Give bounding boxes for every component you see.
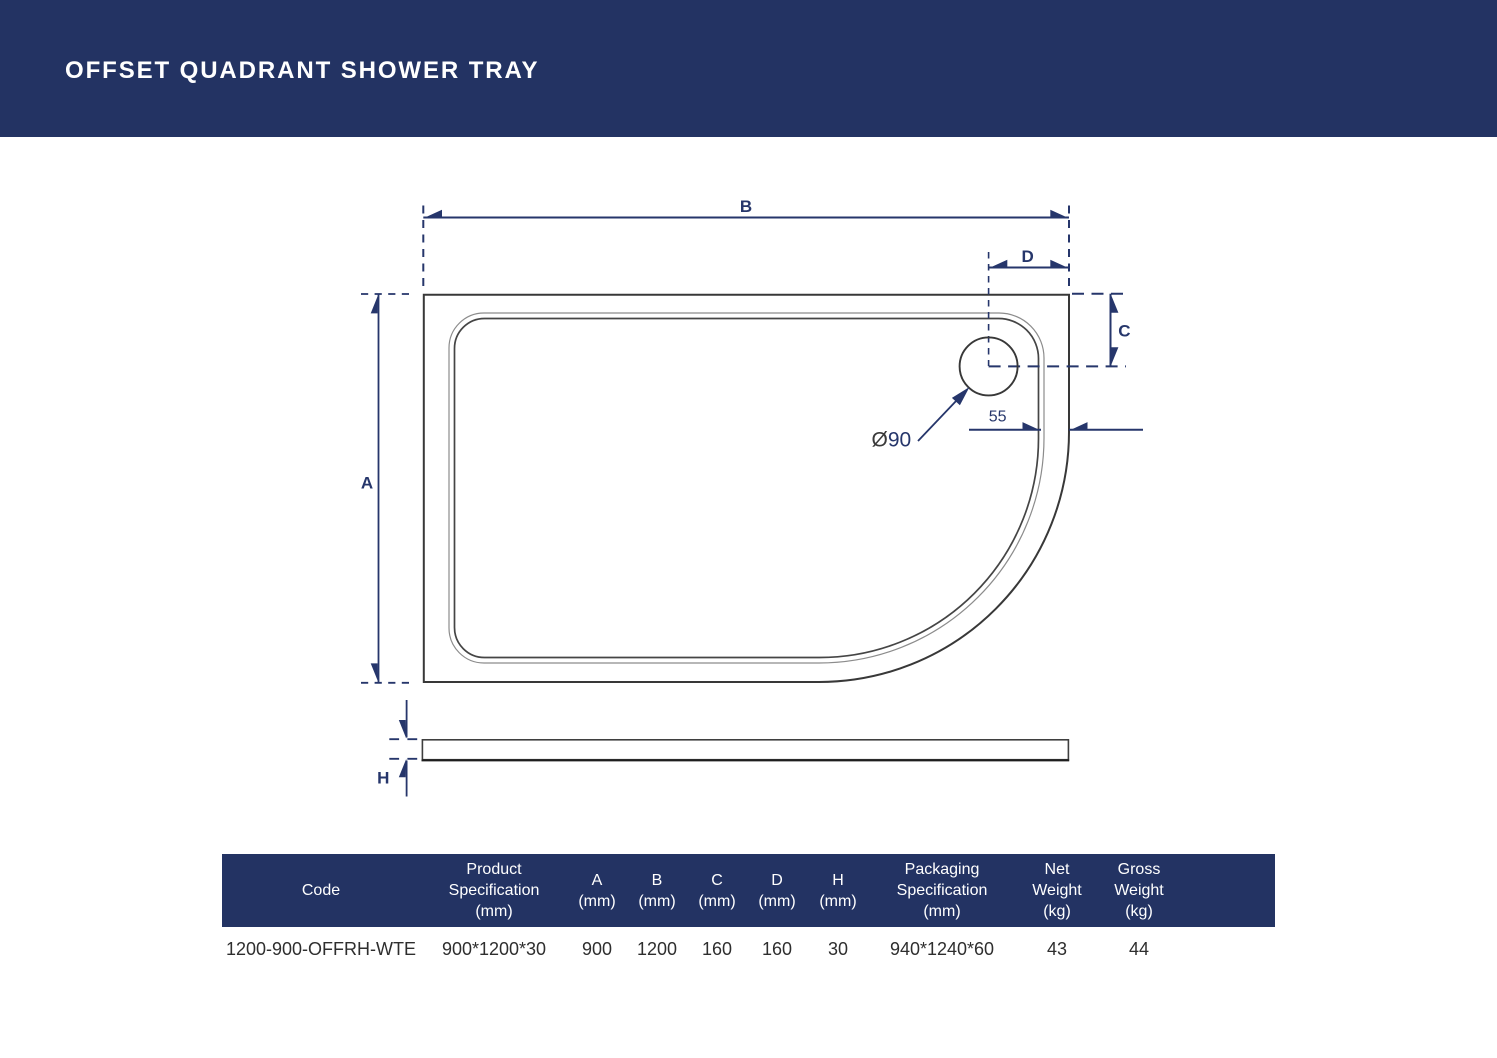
svg-text:Ø90: Ø90 — [872, 429, 912, 452]
svg-text:C: C — [1118, 322, 1130, 341]
svg-text:B: B — [740, 197, 752, 216]
svg-text:A: A — [361, 474, 373, 493]
svg-text:D: D — [1021, 247, 1033, 266]
svg-text:H: H — [377, 769, 389, 788]
svg-text:55: 55 — [989, 409, 1007, 426]
